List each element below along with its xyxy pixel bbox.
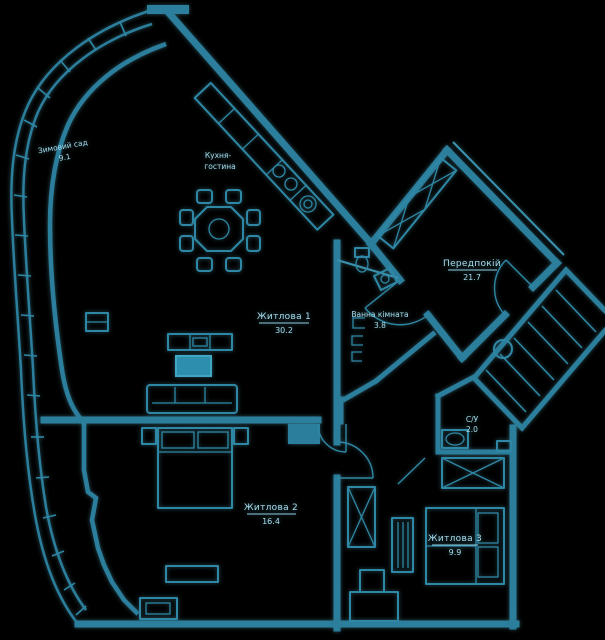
- hob-burner: [285, 178, 297, 190]
- toilet: [356, 256, 368, 272]
- room-name: С/У: [466, 415, 479, 424]
- kitchen-sink-drain: [304, 200, 312, 208]
- chair: [180, 210, 193, 225]
- hob-burner: [273, 165, 285, 177]
- sofa: [147, 385, 237, 413]
- tv-console: [168, 334, 232, 350]
- towel-radiator: [353, 318, 365, 328]
- room-name: Ванна кімната: [351, 310, 408, 319]
- room-area: 2.0: [466, 425, 478, 434]
- chair: [247, 210, 260, 225]
- room-name: Житлова 2: [244, 503, 298, 513]
- room-label-bedroom2: Житлова 3 9.9: [428, 534, 482, 557]
- room-area: 9.9: [449, 548, 462, 557]
- towel-radiator: [352, 336, 363, 345]
- room-area: 3.8: [374, 321, 386, 330]
- pillow: [478, 547, 498, 577]
- chair: [247, 236, 260, 251]
- chair: [197, 258, 212, 271]
- terrace-curved-wall: [11, 10, 166, 624]
- room-label-bedroom: Житлова 2 16.4: [244, 503, 298, 526]
- bedroom-furniture: [140, 428, 248, 619]
- entry-deck: [474, 270, 605, 428]
- room-area: 30.2: [275, 326, 293, 335]
- hall-wardrobe: [378, 158, 457, 249]
- chair: [226, 190, 241, 203]
- chair: [180, 236, 193, 251]
- dining-table: [195, 207, 243, 251]
- room-label-living: Житлова 1 30.2: [257, 312, 311, 335]
- bed: [158, 428, 232, 508]
- room-name: Житлова 3: [428, 534, 482, 544]
- kitchen-sink: [300, 196, 316, 212]
- washing-machine: [350, 592, 398, 621]
- pillow: [198, 432, 228, 448]
- nightstand: [234, 428, 248, 444]
- room-label-kitchen: Кухня- гостина: [204, 151, 235, 171]
- room-name: Житлова 1: [257, 312, 311, 322]
- room-area: 16.4: [262, 517, 280, 526]
- nightstand: [142, 428, 156, 444]
- coffee-table: [176, 356, 211, 376]
- chair: [197, 190, 212, 203]
- room-name: гостина: [204, 162, 235, 171]
- living-furniture: [86, 313, 237, 413]
- room-label-hall: Передпокій 21.7: [443, 259, 501, 282]
- dining-table-and-chairs: [180, 190, 260, 271]
- wall-pier: [288, 424, 320, 444]
- towel-radiator: [352, 352, 362, 361]
- laundry-basket: [360, 570, 384, 592]
- pillow: [162, 432, 194, 448]
- floor-plan: Зимовий сад 9.1 Кухня- гостина Житлова 1…: [0, 0, 605, 640]
- room-name: Кухня-: [205, 151, 232, 160]
- room-label-wc: С/У 2.0: [466, 415, 479, 434]
- room-area: 9.1: [58, 152, 72, 163]
- floor-plan-canvas: Зимовий сад 9.1 Кухня- гостина Житлова 1…: [0, 0, 605, 640]
- room-name: Передпокій: [443, 259, 501, 269]
- room-label-winter-garden: Зимовий сад 9.1: [37, 138, 90, 166]
- room-area: 21.7: [463, 273, 481, 282]
- chair: [226, 258, 241, 271]
- bench: [166, 566, 218, 582]
